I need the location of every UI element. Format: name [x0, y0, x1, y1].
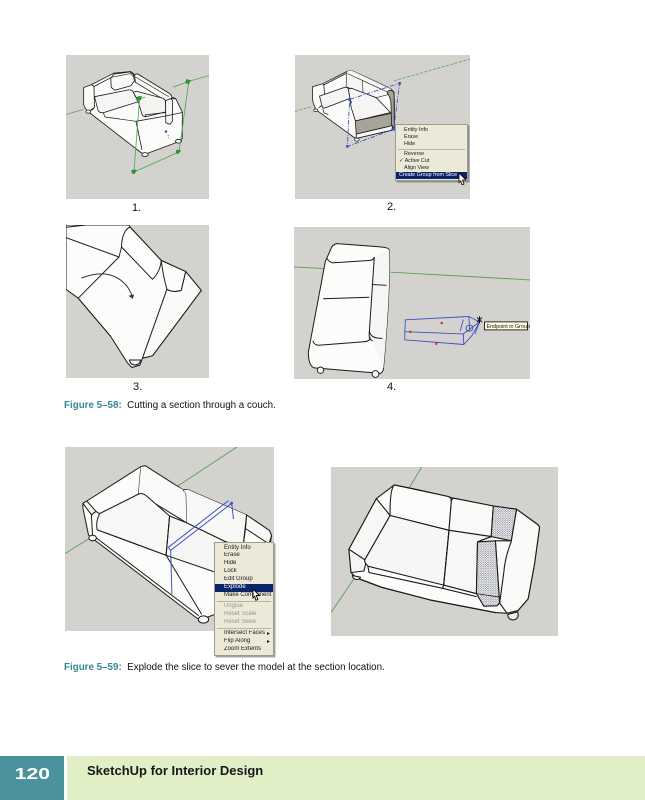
svg-text:Endpoint in Group: Endpoint in Group: [487, 324, 530, 330]
